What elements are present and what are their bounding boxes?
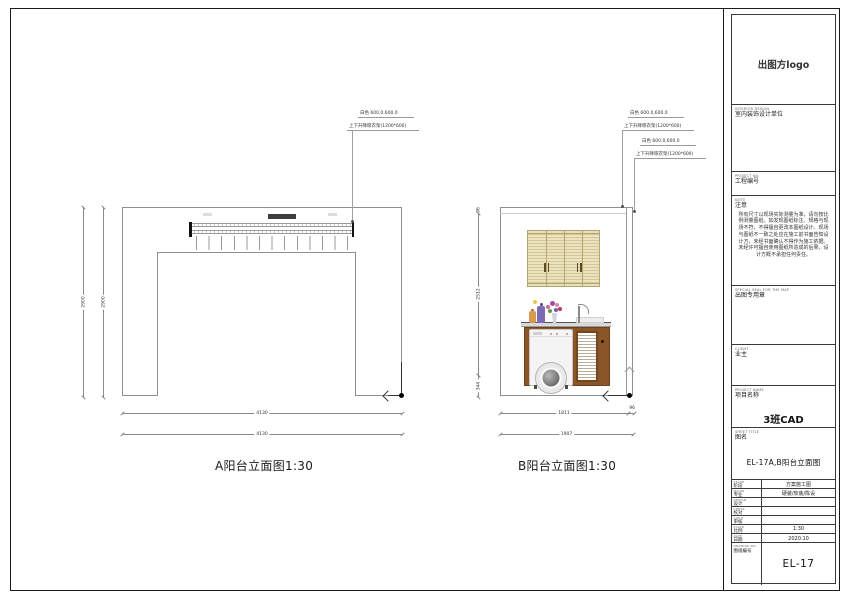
dim-label: 344 xyxy=(477,380,482,393)
row-label-cn: 校对 xyxy=(734,511,760,516)
washer-door xyxy=(535,362,567,394)
tb-row-check: CHECK校对 xyxy=(732,507,835,516)
b-louver-door xyxy=(576,331,598,382)
washer-knob xyxy=(550,333,552,335)
logo: 出图方logo xyxy=(732,57,835,71)
a-dim-width-1: 4130 xyxy=(122,413,402,414)
faucet-tip xyxy=(588,311,590,314)
row-label-cn: 日期 xyxy=(734,538,760,543)
cabinet-handle xyxy=(548,263,550,272)
tb-design-unit-section: INTERIOR DESIGN 室内装饰设计单位 xyxy=(732,105,835,172)
tb-row-audit: AUDIT审核 xyxy=(732,516,835,525)
cabinet-stile xyxy=(564,231,565,286)
b-leader2 xyxy=(634,159,635,212)
a-elevation-title: A阳台立面图1:30 xyxy=(215,459,313,473)
note-label-cn: 注意 xyxy=(735,202,832,210)
b-annotation1-line1: 白色 600.0,600.0 xyxy=(628,111,684,118)
detergent-bottle xyxy=(529,311,536,323)
b-annotation2-line1: 白色 600.0,600.0 xyxy=(640,139,696,146)
project-name-value: 3班CAD xyxy=(732,411,835,426)
dim-label: 2512 xyxy=(477,286,482,301)
rack-rail-bottom xyxy=(190,230,353,234)
louver-handle-dot xyxy=(601,340,604,343)
drawing-no-label-en: DRAWING NO. xyxy=(734,545,760,549)
tb-row-design: DESIGN设计 xyxy=(732,498,835,507)
a-annotation-line1: 白色 600.0,600.0 xyxy=(358,111,414,118)
dim-label: 1907 xyxy=(559,432,574,438)
faint-mark xyxy=(203,213,212,216)
b-elevation-title: B阳台立面图1:30 xyxy=(518,459,616,473)
tb-project-no-section: PROJECT NO. 工程编号 xyxy=(732,172,835,196)
washer-foot xyxy=(565,385,568,389)
yellow-item xyxy=(533,300,537,304)
washing-machine xyxy=(529,329,573,386)
rack-motor-box xyxy=(268,214,296,219)
dim-label: 1811 xyxy=(556,411,571,417)
row-value: 1:30 xyxy=(762,525,835,533)
a-dim-height-outer: 2900 xyxy=(83,207,84,397)
flower xyxy=(558,307,562,311)
b-dim-w-total: 1907 xyxy=(500,434,633,435)
tb-sheet-title-section: SHEET TITLE 图名 EL-17A,B阳台立面图 xyxy=(732,428,835,480)
b-leader1 xyxy=(622,131,623,207)
faint-mark xyxy=(328,213,337,216)
cabinet-stile xyxy=(546,231,547,286)
rack-hanging-rods xyxy=(196,236,348,250)
cabinet-handle xyxy=(544,263,546,272)
sheet-title-label-cn: 图名 xyxy=(735,434,832,442)
design-unit-label-cn: 室内装饰设计单位 xyxy=(735,111,832,119)
a-leader-line xyxy=(352,131,353,222)
title-block: 出图方logo INTERIOR DESIGN 室内装饰设计单位 PROJECT… xyxy=(731,14,836,584)
b-marker-dot xyxy=(627,393,632,398)
b-dim-v-mid: 2512 xyxy=(478,213,479,375)
tb-row-date: DATE日期 2020.10 xyxy=(732,534,835,543)
washer-detergent-drawer xyxy=(533,332,542,335)
row-value: 硬装/软装/陈设 xyxy=(762,489,835,497)
project-no-label-cn: 工程编号 xyxy=(735,178,832,186)
note-text: 所有尺寸以现场实际测量为准，请勿按比例测量图纸。如发现图纸标注、规格与现场不符，… xyxy=(737,212,830,260)
seal-label-cn: 出图专用章 xyxy=(735,292,832,300)
b-dim-w-right: 96 xyxy=(628,413,634,414)
row-value: 2020.10 xyxy=(762,534,835,543)
a-marker-stem xyxy=(401,362,402,394)
tb-client-section: CLIENT 业主 xyxy=(732,345,835,386)
row-label-cn: 审核 xyxy=(734,520,760,525)
b-wall-cabinet xyxy=(527,230,600,287)
tb-drawing-no-section: DRAWING NO. 图纸编号 EL-17 xyxy=(732,543,835,585)
tb-row-major: MAJOR专业 硬装/软装/陈设 xyxy=(732,489,835,498)
a-marker-dot xyxy=(399,393,404,398)
dim-label: 4130 xyxy=(254,411,269,417)
b-dim-v-bot: 344 xyxy=(478,375,479,397)
drawing-no-label-cn: 图纸编号 xyxy=(734,549,760,555)
a-leader-dot xyxy=(351,220,354,223)
row-value xyxy=(762,507,835,515)
washer-drum xyxy=(541,368,562,389)
b-dim-w-left: 1811 xyxy=(500,413,628,414)
b-leader1-dot xyxy=(621,205,624,208)
cabinet-handle xyxy=(580,263,582,272)
washer-knob xyxy=(556,333,558,335)
dim-label: 4130 xyxy=(254,432,269,438)
tb-logo-section: 出图方logo xyxy=(732,15,835,105)
sheet-title-value: EL-17A,B阳台立面图 xyxy=(732,457,835,468)
tb-row-stage: STAGE阶段 方案施工图 xyxy=(732,480,835,489)
a-dim-width-2: 4130 xyxy=(122,434,402,435)
tb-seal-section: SPECIAL SEAL FOR THE MAP 出图专用章 xyxy=(732,286,835,345)
detergent-cap xyxy=(531,309,534,311)
detergent-bottle xyxy=(537,306,545,323)
washer-foot xyxy=(534,385,537,389)
b-annotation2-line2: 上下升降晾衣架(1200*600) xyxy=(634,152,706,159)
a-dim-height-inner: 2900 xyxy=(103,207,104,397)
dim-label: 96 xyxy=(627,406,637,412)
tb-row-scale: SCALE比例 1:30 xyxy=(732,525,835,534)
cabinet-handle xyxy=(577,263,579,272)
flower-leaf xyxy=(548,309,552,313)
row-label-cn: 阶段 xyxy=(734,484,760,489)
a-inner-opening xyxy=(157,252,356,396)
tb-project-name-section: PROJECT NAME 项目名称 3班CAD xyxy=(732,386,835,428)
a-annotation-line2: 上下升降晾衣架(1200*600) xyxy=(347,124,419,131)
b-ceiling-drop-line xyxy=(500,213,626,214)
dim-label: 2900 xyxy=(102,294,107,309)
flower xyxy=(554,308,558,312)
cabinet-stile xyxy=(582,231,583,286)
project-name-label-cn: 项目名称 xyxy=(735,392,832,400)
client-label-cn: 业主 xyxy=(735,351,832,359)
row-label-cn: 设计 xyxy=(734,502,760,507)
row-value xyxy=(762,498,835,506)
rack-rail-top xyxy=(190,223,353,227)
washer-knob xyxy=(566,333,568,335)
detergent-cap xyxy=(540,303,543,306)
tb-info-rows: STAGE阶段 方案施工图 MAJOR专业 硬装/软装/陈设 DESIGN设计 … xyxy=(732,480,835,543)
titleblock-divider xyxy=(723,8,724,591)
row-label-cn: 专业 xyxy=(734,493,760,498)
tb-note-section: NOTE 注意 所有尺寸以现场实际测量为准，请勿按比例测量图纸。如发现图纸标注、… xyxy=(732,196,835,286)
b-leader2-dot xyxy=(633,210,636,213)
b-sink xyxy=(576,317,604,323)
dim-label: 2900 xyxy=(82,294,87,309)
row-value: 方案施工图 xyxy=(762,480,835,488)
row-label-cn: 比例 xyxy=(734,529,760,534)
drawing-no-value: EL-17 xyxy=(762,543,835,585)
row-value xyxy=(762,516,835,524)
b-annotation1-line2: 上下升降晾衣架(1200*600) xyxy=(622,124,694,131)
